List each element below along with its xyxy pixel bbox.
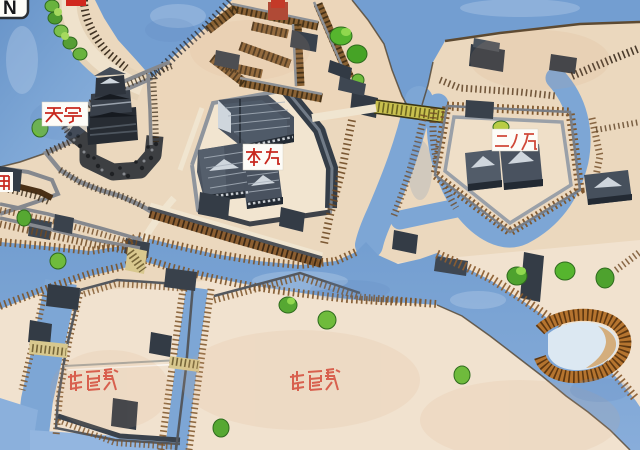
svg-text:N: N bbox=[3, 0, 17, 19]
